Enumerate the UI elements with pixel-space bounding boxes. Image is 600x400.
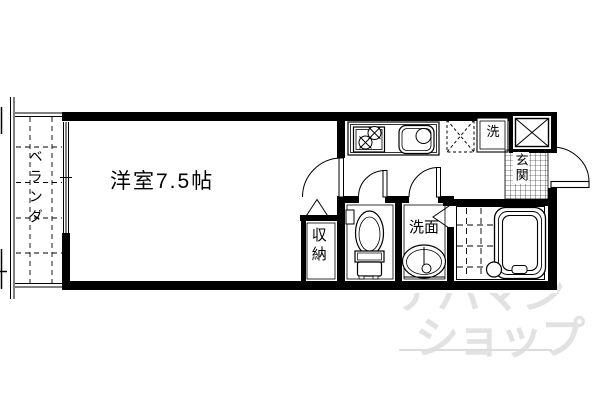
washroom-label: 洗面 xyxy=(401,220,447,236)
floorplan-drawing xyxy=(0,0,600,400)
bath-drain xyxy=(487,262,502,277)
edge-marks xyxy=(0,107,7,289)
laundry-label: 洗 xyxy=(478,125,508,139)
shoe-cabinet xyxy=(513,116,551,149)
closet-label: 収納 xyxy=(310,227,326,265)
floorplan: アパマン ショップ xyxy=(0,0,600,400)
toilet xyxy=(355,211,384,279)
toilet-wall-box xyxy=(346,210,354,224)
kitchen-sink xyxy=(399,126,434,154)
entrance-label: 玄関 xyxy=(513,152,529,184)
plan-background xyxy=(8,97,557,293)
balcony-label: ベランダ xyxy=(28,149,43,229)
kitchen-stove xyxy=(354,127,385,153)
bathtub xyxy=(495,208,546,279)
main-room-label: 洋室7.5帖 xyxy=(110,171,214,193)
